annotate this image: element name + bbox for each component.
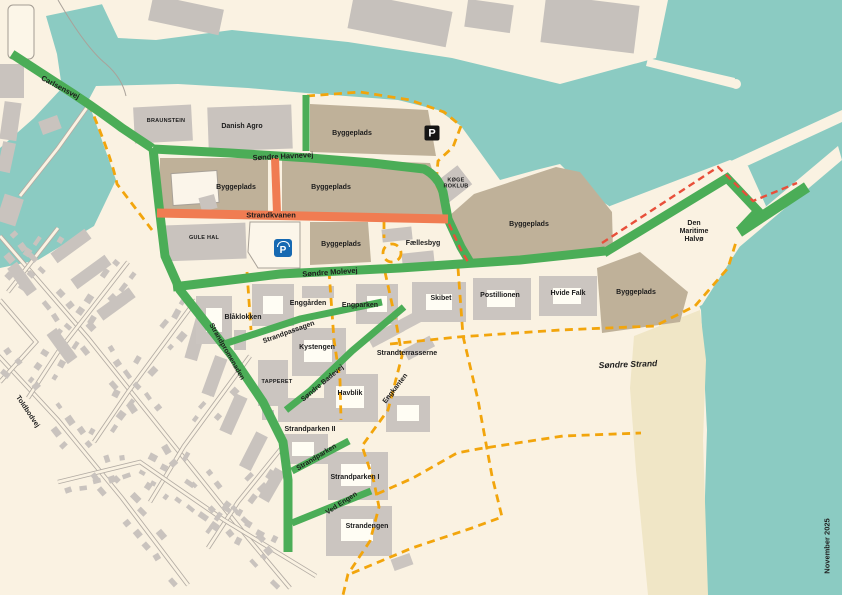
parking-garage-icon: P	[274, 239, 292, 257]
parking-icon: P	[425, 126, 440, 141]
beach	[630, 310, 708, 595]
housing-blocks	[196, 276, 597, 571]
danish-agro-building	[207, 105, 292, 152]
map-canvas	[0, 0, 842, 595]
harbor-map: Carlsensvej BRAUNSTEIN Danish Agro Bygge…	[0, 0, 842, 595]
gule-hal-building	[163, 223, 246, 262]
